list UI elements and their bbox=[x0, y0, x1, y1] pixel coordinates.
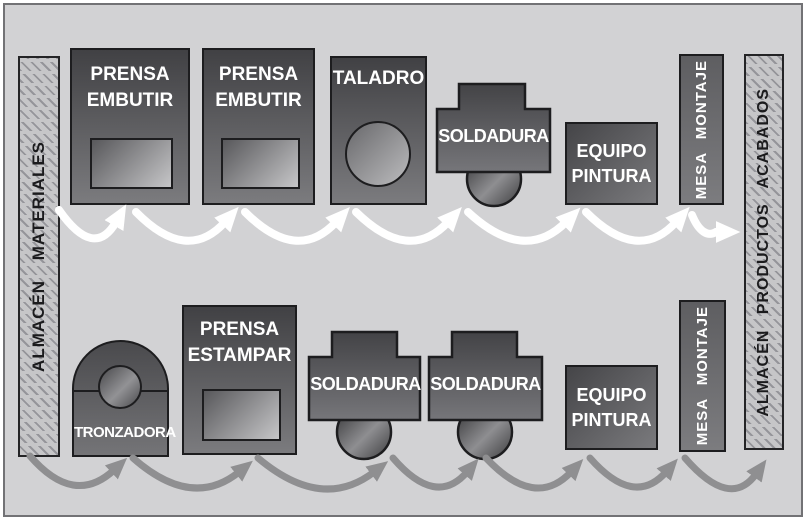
machine-equipo-pintura-bottom: EQUIPO PINTURA bbox=[565, 365, 658, 450]
machine-label: SOLDADURA bbox=[435, 126, 552, 147]
machine-soldadura-bottom-1: SOLDADURA bbox=[307, 330, 424, 463]
machine-tronzadora: TRONZADORA bbox=[72, 340, 169, 457]
machine-equipo-pintura-top: EQUIPO PINTURA bbox=[565, 122, 658, 205]
machine-mesa-montaje-top: MESA MONTAJE bbox=[679, 54, 724, 205]
materials-store-label: ALMACÉN MATERIALES bbox=[29, 141, 49, 372]
drill-table-circle bbox=[345, 121, 411, 187]
press-window bbox=[202, 389, 281, 441]
tronzadora-wheel bbox=[98, 365, 142, 409]
machine-soldadura-top: SOLDADURA bbox=[435, 82, 552, 210]
machine-label: PRENSA EMBUTIR bbox=[204, 62, 313, 114]
machine-label: EQUIPO PINTURA bbox=[567, 383, 656, 433]
machine-taladro: TALADRO bbox=[330, 56, 427, 205]
machine-label: PRENSA EMBUTIR bbox=[72, 62, 188, 114]
press-window bbox=[90, 138, 173, 189]
machine-label: PRENSA ESTAMPAR bbox=[184, 317, 295, 369]
finished-products-store-label: ALMACÉN PRODUCTOS ACABADOS bbox=[755, 88, 773, 417]
machine-label: TALADRO bbox=[332, 66, 425, 92]
machine-label: EQUIPO PINTURA bbox=[567, 139, 656, 189]
machine-prensa-embutir-2: PRENSA EMBUTIR bbox=[202, 48, 315, 205]
machine-label: MESA MONTAJE bbox=[694, 306, 711, 445]
machine-label: SOLDADURA bbox=[427, 374, 544, 395]
machine-mesa-montaje-bottom: MESA MONTAJE bbox=[679, 300, 726, 452]
welder-shape bbox=[427, 330, 544, 463]
finished-products-store-bar: ALMACÉN PRODUCTOS ACABADOS bbox=[744, 54, 784, 450]
welder-shape bbox=[307, 330, 424, 463]
machine-label: SOLDADURA bbox=[307, 374, 424, 395]
machine-prensa-embutir-1: PRENSA EMBUTIR bbox=[70, 48, 190, 205]
materials-store-bar: ALMACÉN MATERIALES bbox=[18, 56, 60, 457]
machine-label: TRONZADORA bbox=[74, 424, 167, 441]
top-flow-arrows bbox=[59, 210, 720, 241]
machine-label: MESA MONTAJE bbox=[693, 60, 710, 199]
machine-prensa-estampar: PRENSA ESTAMPAR bbox=[182, 305, 297, 455]
press-window bbox=[221, 138, 300, 189]
machine-soldadura-bottom-2: SOLDADURA bbox=[427, 330, 544, 463]
factory-layout-diagram: ALMACÉN MATERIALES ALMACÉN PRODUCTOS ACA… bbox=[0, 0, 806, 520]
diagram-frame: ALMACÉN MATERIALES ALMACÉN PRODUCTOS ACA… bbox=[3, 3, 803, 517]
